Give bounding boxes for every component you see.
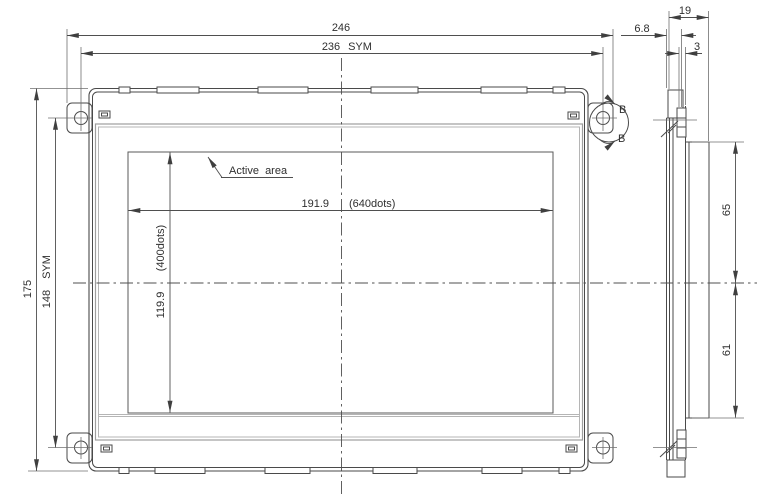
dim-active-height: 119.9 (155, 292, 167, 319)
leader-line (208, 157, 222, 178)
dim-active-width: 191.9 (301, 198, 329, 210)
detail-label-bottom: B (618, 133, 625, 145)
corner-pin-top-right (568, 112, 579, 119)
panel-outer-edge-inner (93, 92, 585, 468)
corner-pin-bottom-right (566, 445, 577, 452)
dim-mount-pitch-height-note: SYM (41, 255, 53, 279)
detail-b-marker: B B (590, 101, 629, 145)
dim-mount-pitch-height: 148 (41, 290, 53, 308)
dim-mount-tab-offset: 3 (694, 41, 700, 53)
active-area-outline (128, 152, 553, 413)
side-ear-bottom (667, 460, 685, 477)
dim-mount-pitch-width-note: SYM (348, 41, 372, 53)
extension-lines (28, 11, 744, 471)
corner-pin-top-left (99, 111, 110, 118)
corner-pin-bottom-left (101, 445, 112, 452)
side-back-frame (686, 142, 710, 418)
active-area-label: Active area (229, 165, 288, 177)
bezel-window-inner (99, 127, 580, 437)
dimensions: 246 236 SYM 175 148 SYM 191.9 (640dots) … (22, 5, 736, 471)
technical-drawing-canvas: 246 236 SYM 175 148 SYM 191.9 (640dots) … (0, 0, 766, 502)
dim-center-to-bottom: 61 (721, 344, 733, 356)
dim-active-height-dots: (400dots) (155, 225, 167, 271)
detail-label-top: B (619, 104, 626, 116)
dim-bezel-depth: 6.8 (634, 23, 649, 35)
dim-center-to-top: 65 (721, 204, 733, 216)
lcd-module-outline-drawing: 246 236 SYM 175 148 SYM 191.9 (640dots) … (0, 0, 766, 502)
panel-outer-edge (89, 89, 588, 472)
front-view (67, 87, 613, 474)
dim-overall-height: 175 (22, 280, 34, 298)
dim-mount-pitch-width: 236 (322, 41, 340, 53)
active-area-callout: Active area (208, 157, 293, 178)
mounting-tab-bottom-left (67, 433, 92, 463)
dim-depth-total: 19 (679, 5, 691, 17)
side-view (653, 90, 709, 477)
dim-overall-width: 246 (332, 22, 350, 34)
dim-active-width-dots: (640dots) (349, 198, 395, 210)
bezel-window (96, 124, 583, 440)
mounting-tab-bottom-right (588, 433, 613, 463)
